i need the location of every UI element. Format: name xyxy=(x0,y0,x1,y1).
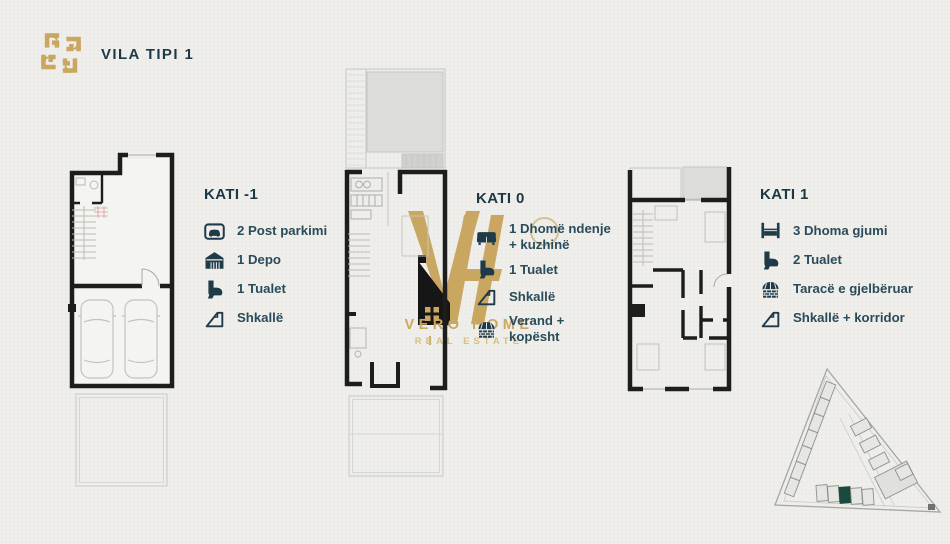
vero-home-emblem-icon xyxy=(34,26,88,80)
floorplan-kati-minus-1 xyxy=(68,148,176,496)
page-title: VILA TIPI 1 xyxy=(101,46,194,63)
feature-label: 1 Depo xyxy=(237,252,281,268)
feature-label: 1 Dhomë ndenje + kuzhinë xyxy=(509,221,613,253)
feature-row: 2 Post parkimi xyxy=(204,221,327,242)
feature-row: Verand + kopësht xyxy=(476,313,613,345)
feature-label: 2 Post parkimi xyxy=(237,223,327,239)
floorplan-kati-1 xyxy=(625,162,735,394)
feature-label: Verand + kopësht xyxy=(509,313,613,345)
floor-heading: KATI 0 xyxy=(476,190,613,207)
highlighted-unit xyxy=(839,487,851,504)
stairs-icon xyxy=(760,308,781,329)
brochure-page: VILA TIPI 1 VERO HOME REAL ESTATE xyxy=(0,0,950,544)
stairs-icon xyxy=(204,308,225,329)
feature-row: Shkallë xyxy=(204,308,327,329)
toilet-icon xyxy=(760,250,781,271)
floorplan-kati-0 xyxy=(342,66,450,482)
sofa-icon xyxy=(476,227,497,248)
feature-label: Shkallë xyxy=(237,310,283,326)
feature-label: Shkallë + korridor xyxy=(793,310,905,326)
feature-row: 2 Tualet xyxy=(760,250,913,271)
feature-label: 1 Tualet xyxy=(509,262,558,278)
feature-label: 1 Tualet xyxy=(237,281,286,297)
stairs-icon xyxy=(476,286,497,307)
feature-label: 3 Dhoma gjumi xyxy=(793,223,888,239)
toilet-icon xyxy=(204,279,225,300)
feature-row: 1 Dhomë ndenje + kuzhinë xyxy=(476,221,613,253)
feature-label: Shkallë xyxy=(509,289,555,305)
feature-row: 3 Dhoma gjumi xyxy=(760,221,913,242)
feature-row: 1 Depo xyxy=(204,250,327,271)
legend-kati-minus-1: KATI -1 2 Post parkimi 1 Depo 1 Tualet S… xyxy=(204,186,327,337)
feature-row: Shkallë + korridor xyxy=(760,308,913,329)
site-master-plan xyxy=(770,360,948,540)
veranda-icon xyxy=(476,319,497,340)
feature-label: 2 Tualet xyxy=(793,252,842,268)
bed-icon xyxy=(760,221,781,242)
legend-kati-1: KATI 1 3 Dhoma gjumi 2 Tualet Taracë e g… xyxy=(760,186,913,337)
feature-row: Taracë e gjelbëruar xyxy=(760,279,913,300)
parking-icon xyxy=(204,221,225,242)
warehouse-icon xyxy=(204,250,225,271)
feature-label: Taracë e gjelbëruar xyxy=(793,281,913,297)
legend-kati-0: KATI 0 1 Dhomë ndenje + kuzhinë 1 Tualet… xyxy=(476,190,613,351)
terrace-icon xyxy=(760,279,781,300)
floor-heading: KATI -1 xyxy=(204,186,327,203)
feature-row: Shkallë xyxy=(476,286,613,307)
feature-row: 1 Tualet xyxy=(476,259,613,280)
toilet-icon xyxy=(476,259,497,280)
floor-heading: KATI 1 xyxy=(760,186,913,203)
feature-row: 1 Tualet xyxy=(204,279,327,300)
